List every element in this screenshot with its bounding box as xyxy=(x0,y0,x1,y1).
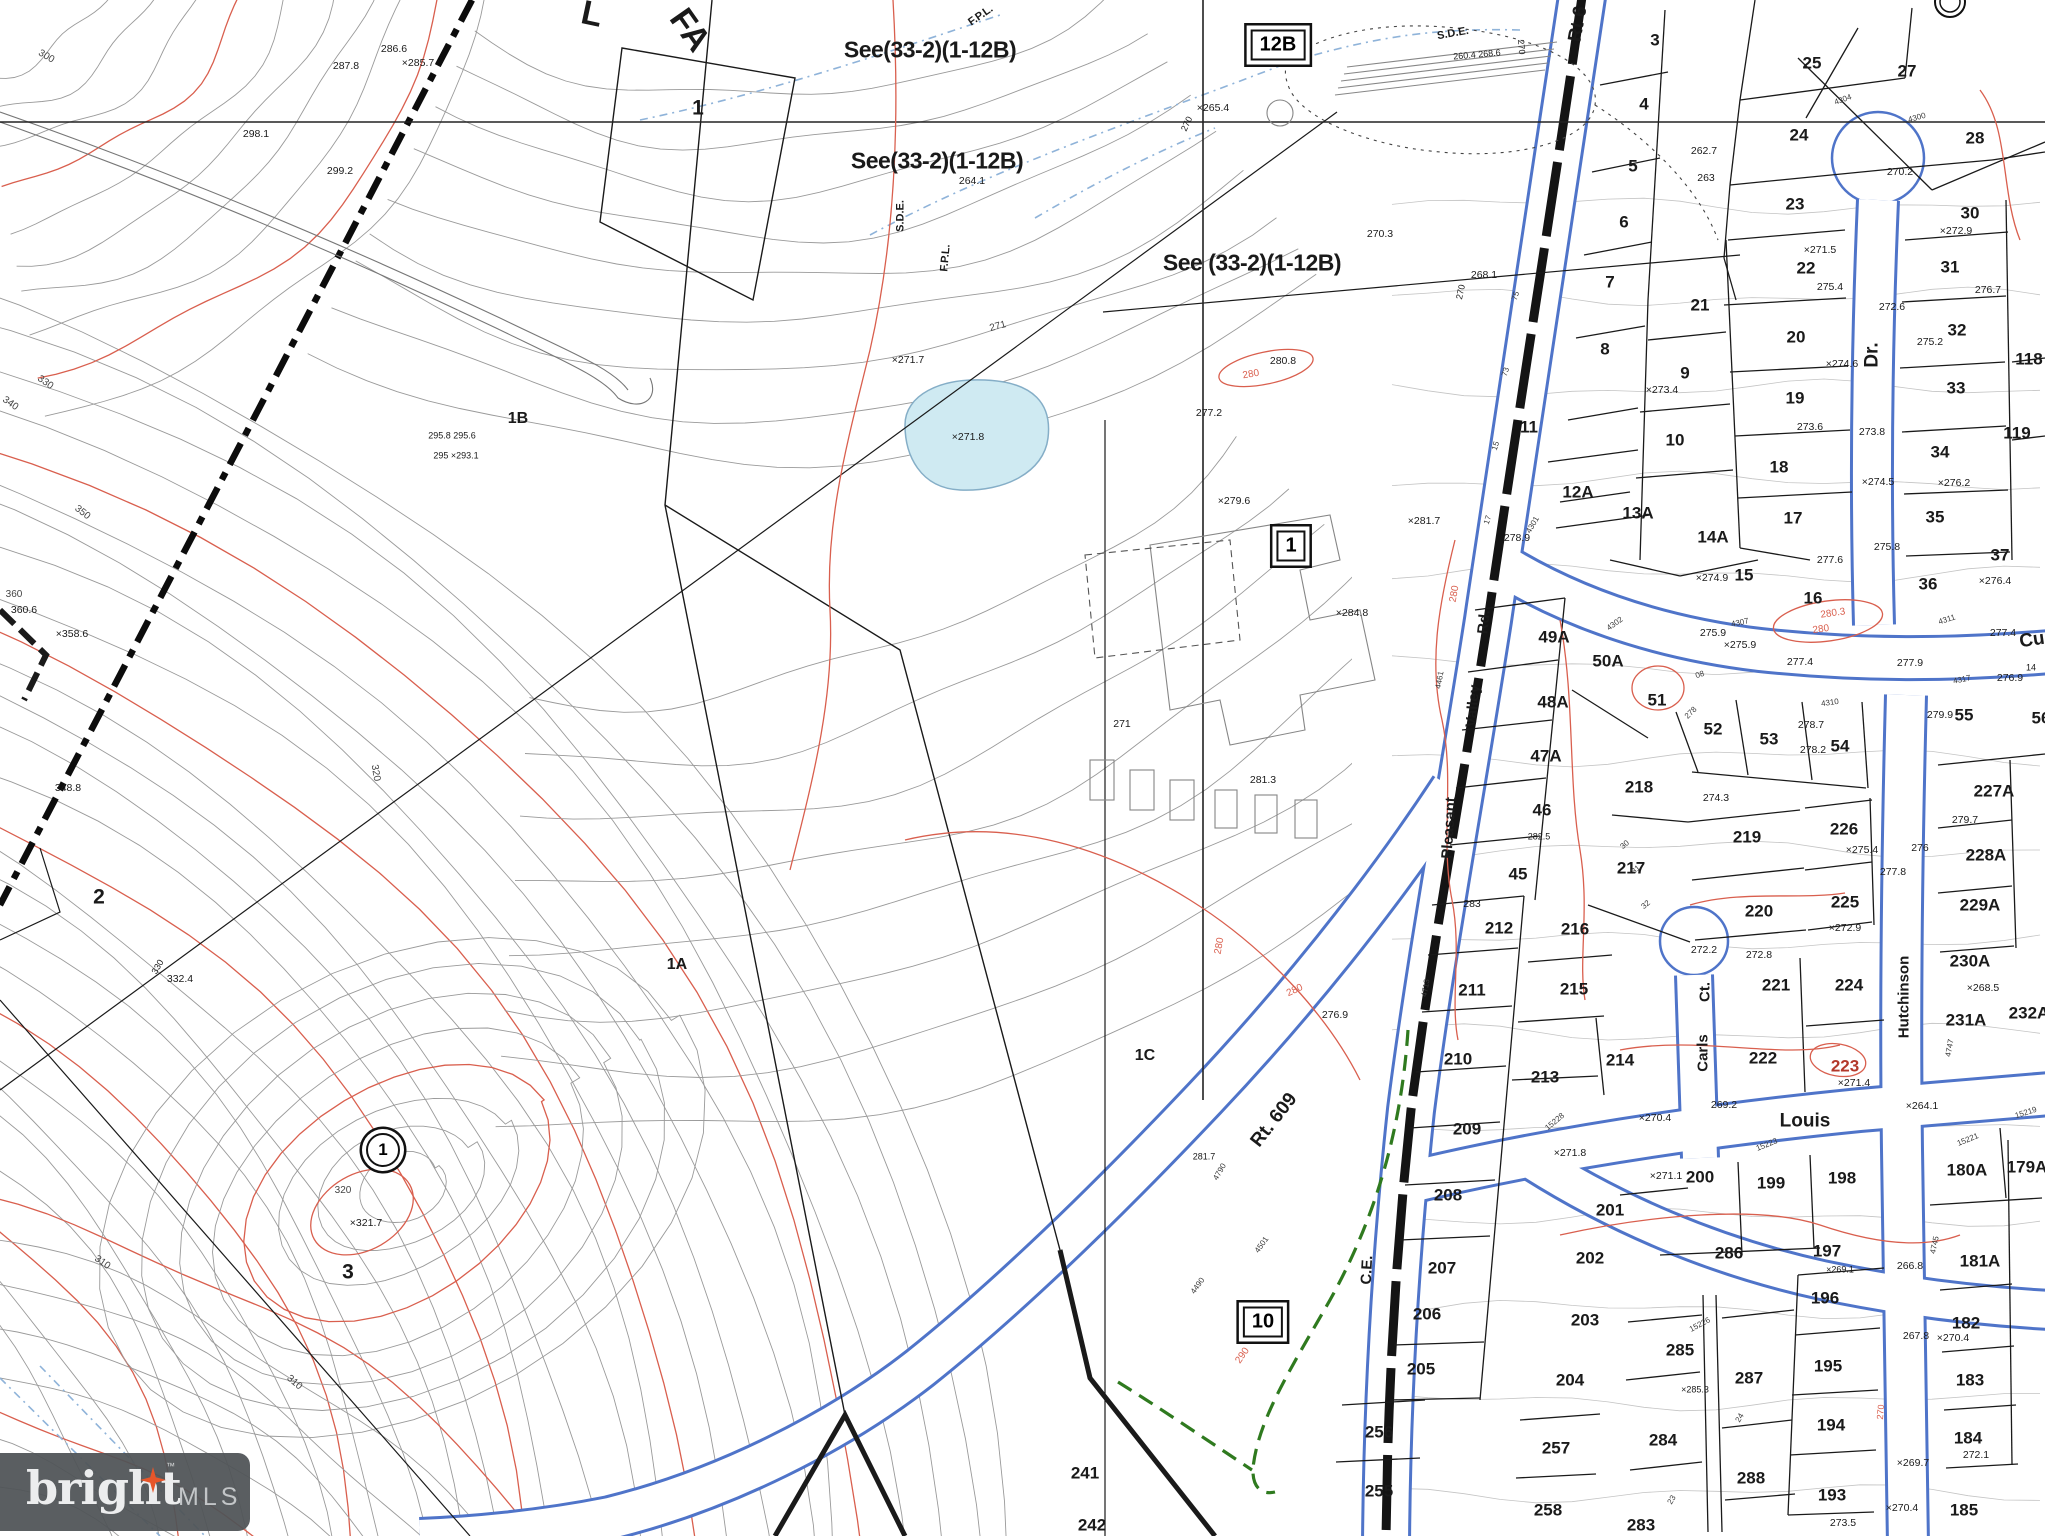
map-label: 284 xyxy=(1649,1432,1677,1449)
map-label: 201 xyxy=(1596,1202,1624,1219)
map-label: 15221 xyxy=(1956,1132,1980,1148)
star-icon xyxy=(138,1465,168,1495)
map-label: 4302 xyxy=(1605,616,1624,633)
map-label: 47A xyxy=(1530,748,1561,765)
map-label: 277.4 xyxy=(1990,628,2016,639)
map-label: Louis xyxy=(1780,1112,1831,1131)
map-label: ×281.7 xyxy=(1408,516,1440,527)
map-label: F.P.L. xyxy=(967,4,996,29)
map-label: 6 xyxy=(1619,214,1628,231)
map-label: 20 xyxy=(1787,329,1806,346)
map-label: ×274.9 xyxy=(1696,573,1728,584)
map-label: 23 xyxy=(1666,1494,1677,1506)
map-label: 211 xyxy=(1458,982,1485,999)
map-label: 15223 xyxy=(1755,1137,1779,1153)
map-label: 4490 xyxy=(1190,1276,1207,1295)
map-label: 272.2 xyxy=(1691,945,1717,956)
map-label: 263 xyxy=(1697,173,1715,184)
map-label: 35 xyxy=(1926,509,1945,526)
map-label: 15219 xyxy=(2014,1106,2038,1120)
map-label: 197 xyxy=(1813,1243,1841,1260)
map-label: 2 xyxy=(93,887,105,908)
map-label: 278.9 xyxy=(1504,533,1530,544)
map-label: 31 xyxy=(1941,259,1960,276)
map-label: 1 xyxy=(692,98,704,119)
map-label: ×275.9 xyxy=(1724,640,1756,651)
map-label: ×269.7 xyxy=(1897,1458,1929,1469)
map-label: 281.7 xyxy=(1193,1153,1216,1162)
map-label: See (33-2)(1-12B) xyxy=(1163,252,1341,275)
map-labels-layer: 300298.1299.2287.8286.6×285.7LFA13303403… xyxy=(0,0,2045,1536)
map-label: 278.2 xyxy=(1800,745,1826,756)
map-label: 32 xyxy=(1640,899,1652,911)
map-label: 295.8 295.6 xyxy=(428,432,476,441)
map-label: 24 xyxy=(1790,127,1809,144)
map-label: 28 xyxy=(1966,130,1985,147)
map-label: ×272.9 xyxy=(1829,923,1861,934)
map-label: ×271.8 xyxy=(952,432,984,443)
boxed-parcel-marker: 12B xyxy=(1251,30,1306,61)
map-label: 19 xyxy=(1786,390,1805,407)
map-label: Dr. xyxy=(1863,342,1882,367)
map-label: 272.6 xyxy=(1879,302,1905,313)
map-label: ×274.5 xyxy=(1862,477,1894,488)
map-label: 46 xyxy=(1533,802,1552,819)
map-label: 37 xyxy=(1991,547,2010,564)
circled-parcel-marker: 1 xyxy=(366,1133,400,1167)
map-label: 196 xyxy=(1811,1290,1839,1307)
map-label: 283 xyxy=(1463,899,1481,910)
map-label: 45 xyxy=(1509,866,1528,883)
map-label: ×285.7 xyxy=(402,58,434,69)
boxed-parcel-marker: 10 xyxy=(1243,1307,1283,1338)
map-label: ×265.4 xyxy=(1197,103,1229,114)
map-label: 256 xyxy=(1365,1424,1393,1441)
map-label: 4745 xyxy=(1929,1235,1941,1254)
map-label: 4790 xyxy=(1212,1162,1228,1181)
map-label: Pleasant xyxy=(1439,797,1458,860)
boxed-parcel-marker: 1 xyxy=(1276,531,1305,562)
map-label: 7 xyxy=(1605,274,1614,291)
map-label: 181A xyxy=(1960,1253,2001,1270)
map-label: 18 xyxy=(1770,459,1789,476)
map-label: 205 xyxy=(1407,1361,1435,1378)
map-label: 15 xyxy=(1735,567,1754,584)
map-label: 276.7 xyxy=(1975,285,2001,296)
map-label: 241 xyxy=(1071,1465,1099,1482)
map-label: 299.2 xyxy=(327,166,353,177)
map-label: L xyxy=(578,0,605,33)
map-label: 203 xyxy=(1571,1312,1599,1329)
map-label: 3 xyxy=(342,1262,354,1283)
map-label: 199 xyxy=(1757,1175,1785,1192)
map-label: 206 xyxy=(1413,1306,1441,1323)
tax-map-canvas: 300298.1299.2287.8286.6×285.7LFA13303403… xyxy=(0,0,2045,1536)
map-label: 320 xyxy=(369,764,382,782)
map-label: 14A xyxy=(1697,529,1728,546)
map-label: 54 xyxy=(1831,738,1850,755)
map-label: 340 xyxy=(0,395,19,413)
map-label: 14 xyxy=(2026,664,2036,673)
map-label: 277.8 xyxy=(1880,867,1906,878)
map-label: 222 xyxy=(1749,1050,1777,1067)
map-label: 4317 xyxy=(1952,674,1971,686)
map-label: 15226 xyxy=(1688,1316,1711,1334)
map-label: 262.7 xyxy=(1691,146,1717,157)
map-label: 330 xyxy=(150,958,165,976)
map-label: Ct. xyxy=(1698,982,1713,1002)
map-label: 286.6 xyxy=(381,44,407,55)
map-label: 55 xyxy=(1955,707,1974,724)
map-label: 118 xyxy=(2015,351,2042,368)
map-label: 286 xyxy=(1715,1245,1743,1262)
map-label: ×264.1 xyxy=(1906,1101,1938,1112)
map-label: Carls xyxy=(1696,1034,1711,1072)
map-label: ×279.6 xyxy=(1218,496,1250,507)
map-label: 75 xyxy=(1511,291,1521,302)
map-label: 33 xyxy=(1947,380,1966,397)
map-label: ×271.4 xyxy=(1838,1078,1870,1089)
map-label: 204 xyxy=(1556,1372,1584,1389)
map-label: 4300 xyxy=(1907,112,1926,124)
map-label: 212 xyxy=(1485,920,1513,937)
map-label: 224 xyxy=(1835,977,1863,994)
map-label: 225 xyxy=(1831,894,1859,911)
map-label: 17 xyxy=(1784,510,1803,527)
map-label: 231A xyxy=(1946,1012,1987,1029)
map-label: 223 xyxy=(1831,1058,1859,1075)
map-label: 4311 xyxy=(1938,614,1957,627)
map-label: 279.9 xyxy=(1927,710,1953,721)
map-label: 15 xyxy=(1491,441,1501,452)
map-label: 269.2 xyxy=(1711,1100,1737,1111)
map-label: 179A xyxy=(2007,1159,2045,1176)
map-label: 4304 xyxy=(1833,93,1852,107)
map-label: 56 xyxy=(2032,710,2045,727)
map-label: 218 xyxy=(1625,779,1653,796)
map-label: Cu xyxy=(2018,629,2045,651)
map-label: 271 xyxy=(989,320,1008,334)
map-label: 50A xyxy=(1592,653,1623,670)
map-label: 270 xyxy=(1516,39,1526,55)
map-label: 275.4 xyxy=(1817,282,1843,293)
map-label: 12A xyxy=(1562,484,1593,501)
map-label: 280.3 xyxy=(1820,607,1846,620)
map-label: 270 xyxy=(1180,115,1195,132)
map-label: 25 xyxy=(1803,55,1822,72)
map-label: C.E. xyxy=(1359,1255,1376,1285)
map-label: 216 xyxy=(1561,921,1589,938)
map-label: 24 xyxy=(1734,1412,1745,1424)
map-label: 271 xyxy=(1113,719,1131,730)
map-label: 185 xyxy=(1950,1502,1978,1519)
map-label: ×321.7 xyxy=(350,1218,382,1229)
map-label: 242 xyxy=(1078,1517,1106,1534)
map-label: 208 xyxy=(1434,1187,1462,1204)
map-label: 36 xyxy=(1919,576,1938,593)
map-label: 280 xyxy=(1242,369,1260,382)
map-label: 22 xyxy=(1797,260,1816,277)
map-label: 348.8 xyxy=(55,783,81,794)
map-label: 272.1 xyxy=(1963,1450,1989,1461)
map-label: 275.8 xyxy=(1874,542,1900,553)
map-label: ×271.7 xyxy=(892,355,924,366)
map-label: 280 xyxy=(1214,937,1227,955)
map-label: 287.8 xyxy=(333,61,359,72)
map-label: ×271.8 xyxy=(1554,1148,1586,1159)
map-label: ×270.4 xyxy=(1937,1333,1969,1344)
map-label: 258 xyxy=(1534,1502,1562,1519)
map-label: 230A xyxy=(1950,953,1991,970)
map-label: 280.8 xyxy=(1270,356,1296,367)
map-label: 310 xyxy=(92,1254,111,1272)
map-label: 214 xyxy=(1606,1052,1634,1069)
map-label: F.P.L. xyxy=(939,244,952,272)
map-label: 11 xyxy=(1520,419,1538,436)
map-label: FA xyxy=(664,2,717,57)
map-label: 285 xyxy=(1666,1342,1694,1359)
map-label: Rt. 609 xyxy=(1247,1090,1300,1151)
map-label: 49A xyxy=(1538,629,1569,646)
map-label: 27 xyxy=(1898,63,1917,80)
map-label: 53 xyxy=(1760,731,1779,748)
map-label: 1A xyxy=(667,957,687,973)
map-label: 350 xyxy=(72,504,91,522)
map-label: 288 xyxy=(1737,1470,1765,1487)
map-label: 260.4 268.6 xyxy=(1453,48,1501,61)
map-label: 332.4 xyxy=(167,974,193,985)
map-label: 278 xyxy=(1683,705,1698,720)
map-label: ×284.8 xyxy=(1336,608,1368,619)
map-label: ×273.4 xyxy=(1646,385,1678,396)
map-label: Rt 6 xyxy=(1566,5,1591,44)
map-label: 15228 xyxy=(1544,1112,1566,1132)
map-label: ×271.5 xyxy=(1804,245,1836,256)
map-label: 1C xyxy=(1135,1048,1155,1064)
map-label: 266.8 xyxy=(1897,1261,1923,1272)
map-label: 4310 xyxy=(1821,698,1840,708)
map-label: 277.2 xyxy=(1196,408,1222,419)
map-label: ×270.4 xyxy=(1639,1113,1671,1124)
map-label: 51 xyxy=(1648,692,1667,709)
map-label: 52 xyxy=(1704,721,1723,738)
map-label: 272.8 xyxy=(1746,950,1772,961)
brand-suffix: MLS xyxy=(178,1483,241,1512)
map-label: 280 xyxy=(1285,983,1304,999)
map-label: 270.3 xyxy=(1367,229,1393,240)
map-label: ×272.9 xyxy=(1940,226,1972,237)
map-label: 193 xyxy=(1818,1487,1846,1504)
map-label: 183 xyxy=(1956,1372,1984,1389)
map-label: ×276.4 xyxy=(1979,576,2011,587)
map-label: 283 xyxy=(1627,1517,1655,1534)
map-label: 276.9 xyxy=(1997,673,2023,684)
map-label: Valley xyxy=(1464,684,1483,728)
map-label: 3 xyxy=(1650,32,1659,49)
map-label: S.D.E. xyxy=(896,200,907,232)
map-label: 280 xyxy=(1449,585,1462,603)
map-label: 200 xyxy=(1686,1169,1714,1186)
map-label: 268.1 xyxy=(1471,270,1497,281)
map-label: 32 xyxy=(1948,322,1967,339)
map-label: 4307 xyxy=(1730,617,1749,629)
map-label: See(33-2)(1-12B) xyxy=(851,150,1023,173)
map-label: 220 xyxy=(1745,903,1773,920)
map-label: 276 xyxy=(1911,843,1929,854)
map-label: 194 xyxy=(1817,1417,1845,1434)
map-label: 34 xyxy=(1931,444,1950,461)
map-label: 320 xyxy=(335,1186,352,1196)
map-label: 277.6 xyxy=(1817,555,1843,566)
map-label: 226 xyxy=(1830,821,1858,838)
map-label: 277.9 xyxy=(1897,658,1923,669)
brightmls-logo: bright ™ MLS xyxy=(0,1453,250,1531)
map-label: 287 xyxy=(1735,1370,1763,1387)
map-label: 270 xyxy=(1455,284,1467,301)
map-label: 295 ×293.1 xyxy=(433,452,478,461)
map-label: 184 xyxy=(1954,1430,1982,1447)
map-label: 300 xyxy=(36,48,55,65)
map-label: 21 xyxy=(1691,297,1710,314)
map-label: 273.8 xyxy=(1859,427,1885,438)
map-label: 215 xyxy=(1560,981,1588,998)
map-label: ×268.5 xyxy=(1967,983,1999,994)
map-label: 360 xyxy=(6,590,23,600)
map-label: ×270.4 xyxy=(1886,1503,1918,1514)
map-label: 270.2 xyxy=(1887,167,1913,178)
map-label: 180A xyxy=(1947,1162,1988,1179)
map-label: 30 xyxy=(1961,205,1980,222)
map-label: See(33-2)(1-12B) xyxy=(844,39,1016,62)
map-label: 4301 xyxy=(1525,515,1541,534)
brand-trademark: ™ xyxy=(166,1461,175,1471)
map-label: 257 xyxy=(1542,1440,1570,1457)
map-label: 202 xyxy=(1576,1250,1604,1267)
map-label: 277.4 xyxy=(1787,657,1813,668)
map-label: 280 xyxy=(1812,624,1830,636)
map-label: ×358.6 xyxy=(56,629,88,640)
map-label: 209 xyxy=(1453,1121,1481,1138)
map-label: ×275.4 xyxy=(1846,845,1878,856)
map-label: 273.6 xyxy=(1797,422,1823,433)
map-label: 207 xyxy=(1428,1260,1456,1277)
map-label: ×269.1 xyxy=(1826,1266,1854,1275)
map-label: 264.1 xyxy=(959,176,985,187)
map-label: 23 xyxy=(1786,196,1805,213)
map-label: 210 xyxy=(1444,1051,1472,1068)
map-label: 4713 xyxy=(1421,979,1432,998)
map-label: 4501 xyxy=(1254,1235,1271,1254)
map-label: 270 xyxy=(1876,1404,1886,1420)
map-label: ×285.3 xyxy=(1681,1386,1709,1395)
map-label: Hutchinson xyxy=(1897,956,1912,1039)
map-label: 282.5 xyxy=(1528,833,1551,842)
map-label: 267.8 xyxy=(1903,1331,1929,1342)
map-label: 182 xyxy=(1952,1315,1980,1332)
map-label: 219 xyxy=(1733,829,1761,846)
map-label: 4 xyxy=(1639,96,1648,113)
map-label: 4747 xyxy=(1945,1039,1956,1058)
map-label: 73 xyxy=(1501,367,1511,378)
map-label: 5 xyxy=(1628,158,1637,175)
map-label: 4461 xyxy=(1435,671,1446,690)
map-label: 273.5 xyxy=(1830,1518,1856,1529)
map-label: 275.9 xyxy=(1700,628,1726,639)
map-label: 255 xyxy=(1365,1483,1393,1500)
map-label: 330 xyxy=(35,374,54,392)
map-label: 290 xyxy=(1234,1346,1252,1365)
map-label: 360.6 xyxy=(11,605,37,616)
map-label: 17 xyxy=(1483,515,1493,526)
map-label: 227A xyxy=(1974,783,2015,800)
map-label: 9 xyxy=(1680,365,1689,382)
map-label: 198 xyxy=(1828,1170,1856,1187)
map-label: 16 xyxy=(1804,590,1823,607)
map-label: 298.1 xyxy=(243,129,269,140)
map-label: 274.3 xyxy=(1703,793,1729,804)
map-label: 221 xyxy=(1762,977,1790,994)
map-label: ×271.1 xyxy=(1650,1171,1682,1182)
map-label: 229A xyxy=(1960,897,2001,914)
map-label: ×274.6 xyxy=(1826,359,1858,370)
map-label: S.D.E. xyxy=(1436,26,1469,42)
map-label: 13A xyxy=(1622,505,1653,522)
map-label: 48A xyxy=(1537,694,1568,711)
map-label: 276.9 xyxy=(1322,1010,1348,1021)
map-label: 1B xyxy=(508,411,528,427)
map-label: 119 xyxy=(2003,425,2030,442)
map-label: 213 xyxy=(1531,1069,1559,1086)
map-label: 232A xyxy=(2009,1005,2045,1022)
map-label: 278.7 xyxy=(1798,720,1824,731)
map-label: 08 xyxy=(1695,670,1706,680)
map-label: 279.7 xyxy=(1952,815,1978,826)
map-label: 281.3 xyxy=(1250,775,1276,786)
map-label: 275.2 xyxy=(1917,337,1943,348)
map-label: 195 xyxy=(1814,1358,1842,1375)
map-label: 30 xyxy=(1619,839,1631,851)
map-label: 228A xyxy=(1966,847,2007,864)
map-label: 10 xyxy=(1666,432,1685,449)
map-label: ×276.2 xyxy=(1938,478,1970,489)
map-label: 310 xyxy=(284,1374,303,1392)
map-label: Rd. xyxy=(1475,609,1492,635)
map-label: 8 xyxy=(1600,341,1609,358)
